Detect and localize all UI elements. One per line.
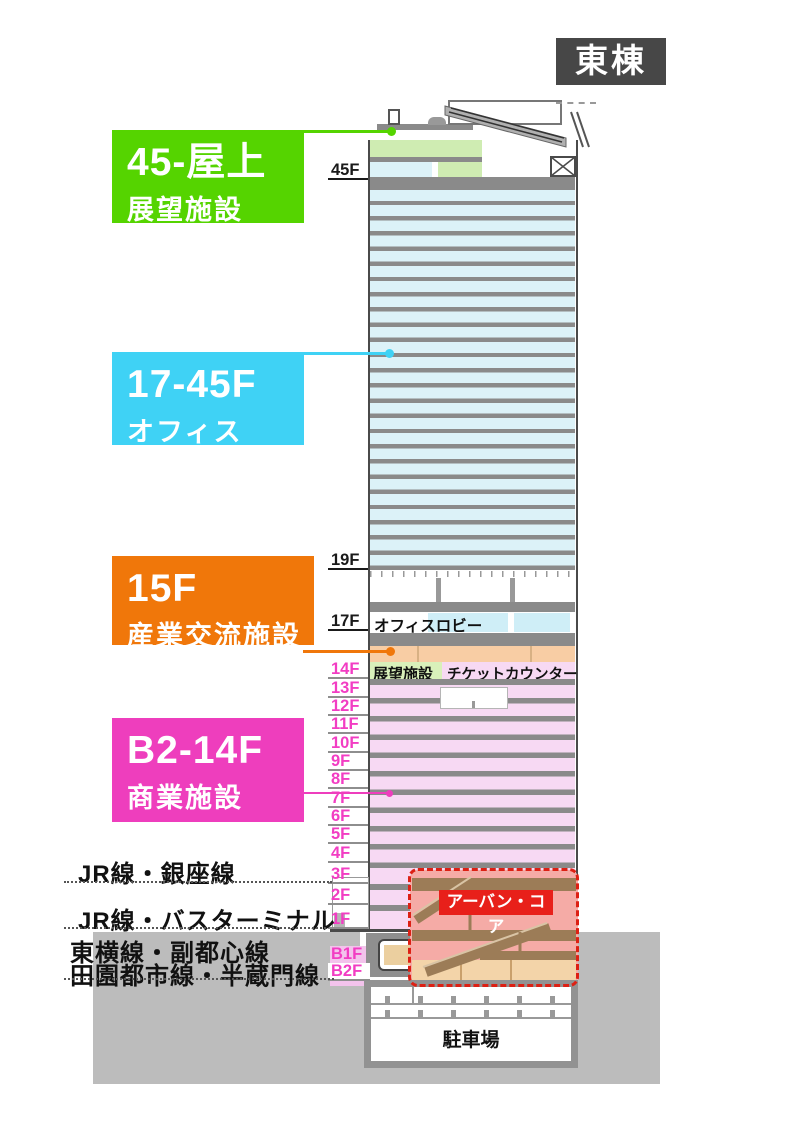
retail-floor-stripes [370, 685, 575, 868]
floor-mark-12f: 12F [328, 698, 368, 716]
leader-retail [303, 792, 387, 794]
floor-mark-5f: 5F [328, 826, 368, 844]
zone-label-industry: 15F 産業交流施設 [112, 556, 314, 645]
floor45-green-band [438, 162, 482, 177]
transit-jr-ginza: JR線・銀座線 [78, 854, 236, 889]
industry-floor-band [370, 646, 575, 662]
parking-column [385, 996, 390, 1003]
leader-office [300, 352, 387, 355]
leader-dot-retail [386, 790, 393, 797]
band-divider [417, 646, 419, 662]
zone-name: 展望施設 [127, 188, 304, 227]
transit-level-line [64, 978, 334, 980]
floor-mark-8f: 8F [328, 771, 368, 789]
parking-column [517, 1010, 522, 1017]
transit-jr-bus: JR線・バスターミナル [78, 901, 336, 936]
parking-divider [412, 987, 414, 1003]
zone-name: オフィス [127, 410, 304, 449]
crown-main-slab [370, 177, 575, 190]
zone-label-office: 17-45F オフィス [112, 352, 304, 445]
floor-mark-4f: 4F [328, 845, 368, 863]
parking-column [550, 996, 555, 1003]
leader-dot-industry [386, 647, 395, 656]
building-section-diagram: オフィスロビー 展望施設 チケットカウンター [0, 0, 800, 1131]
leader-dot-observatory [387, 127, 396, 136]
parking-column [418, 996, 423, 1003]
floor-mark-45f: 45F [328, 162, 368, 180]
parking-column [517, 996, 522, 1003]
roof-dashed-line [556, 102, 596, 104]
urban-core-dashed-border [408, 868, 579, 987]
roof-hatch-line [577, 112, 589, 147]
transit-level-line [64, 927, 326, 929]
parking-column [418, 1010, 423, 1017]
floor-mark-17f: 17F [328, 613, 368, 631]
parking-deck-line [371, 1017, 571, 1019]
mech-column [510, 578, 515, 602]
leader-industry [303, 650, 389, 653]
zone-name: 商業施設 [127, 776, 304, 815]
parking-column [385, 1010, 390, 1017]
zone-range: B2-14F [127, 730, 304, 773]
parking-column [484, 1010, 489, 1017]
crown-green-band [370, 140, 482, 157]
floor-mark-11f: 11F [328, 716, 368, 734]
band-divider [530, 646, 532, 662]
zone-range: 45-屋上 [127, 142, 304, 185]
floor-mark-10f: 10F [328, 735, 368, 753]
mech-floor-ticks [370, 571, 575, 577]
zone-range: 17-45F [127, 364, 304, 407]
transit-level-line [64, 881, 332, 883]
lobby-glass-panel [514, 613, 570, 632]
floor-slab [370, 602, 575, 612]
floor-mark-14f: 14F [328, 661, 368, 679]
zone-label-retail: B2-14F 商業施設 [112, 718, 304, 822]
building-title: 東棟 [556, 38, 666, 85]
parking-column [484, 996, 489, 1003]
floor-mark-19f: 19F [328, 552, 368, 570]
parking-column [451, 1010, 456, 1017]
floor-mark-6f: 6F [328, 808, 368, 826]
floor-mark-9f: 9F [328, 753, 368, 771]
zone-label-observatory: 45-屋上 展望施設 [112, 130, 304, 223]
zone-name: 産業交流施設 [127, 614, 314, 653]
atrium-void-tick [472, 701, 475, 708]
parking-structure: 駐車場 [364, 980, 578, 1068]
floor-slab [370, 633, 575, 646]
office-floor-stripes [370, 190, 575, 570]
leader-observatory [300, 130, 388, 133]
floor-mark-b2f: B2F [328, 963, 370, 981]
floor-mark-13f: 13F [328, 680, 368, 698]
parking-label: 駐車場 [371, 1025, 571, 1052]
leader-dot-office [385, 349, 394, 358]
zone-range: 15F [127, 568, 314, 611]
parking-deck-line [371, 1003, 571, 1005]
transit-denentoshi-hanzomon: 田園都市線・半蔵門線 [70, 956, 320, 991]
parking-column [451, 996, 456, 1003]
roof-mound [428, 117, 446, 125]
mech-column [436, 578, 441, 602]
parking-column [550, 1010, 555, 1017]
floor45-cyan-band [370, 162, 432, 177]
floor-mark-3f: 3F [328, 866, 368, 884]
sky-deck-outline [448, 100, 562, 125]
roof-post [388, 109, 400, 125]
